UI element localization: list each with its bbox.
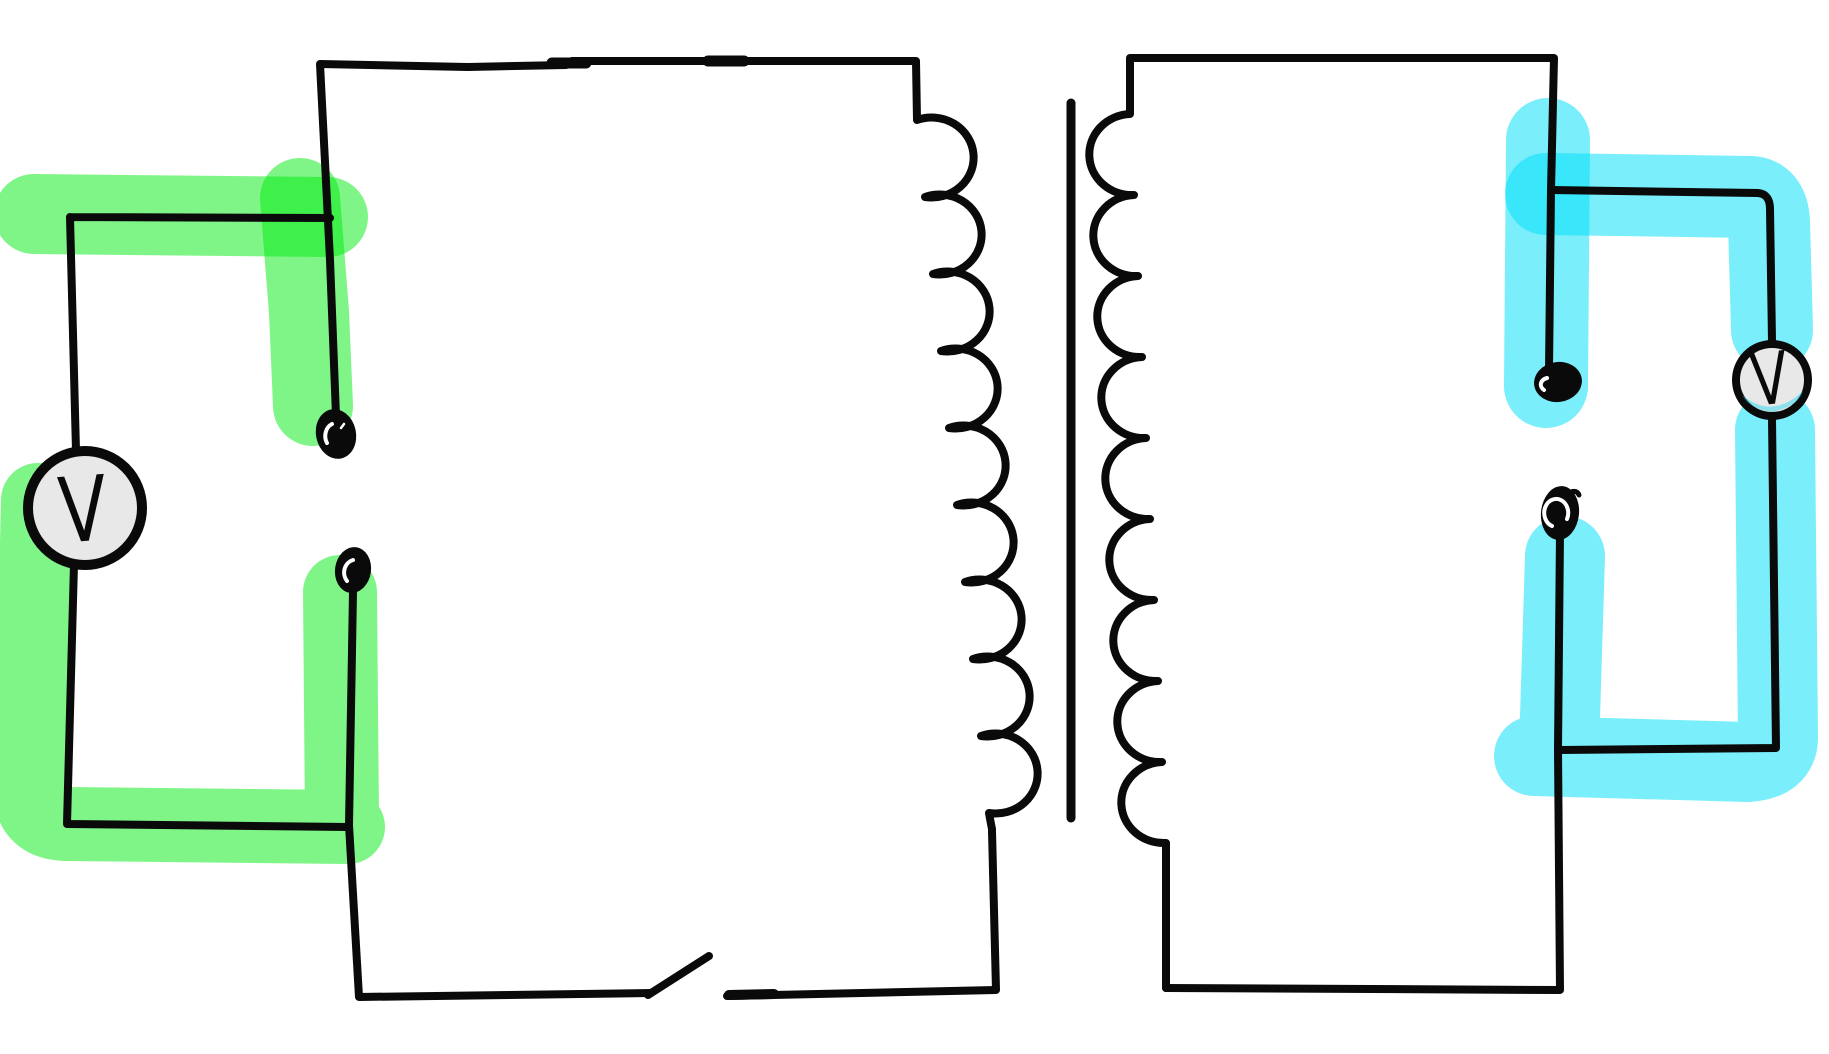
cyan-highlighter-right-loop — [1534, 140, 1778, 762]
voltmeter-right: V — [1736, 337, 1808, 424]
cyan-highlight-bottom-stroke — [1534, 430, 1778, 762]
switch-blade — [648, 956, 709, 995]
terminal-dots — [311, 359, 1584, 595]
hand-drawn-transformer-circuit-diagram: V V — [0, 0, 1829, 1054]
pen-overlap-mark-bottom — [729, 994, 774, 995]
green-highlight-probe-stroke — [300, 198, 313, 406]
voltmeter-left-label: V — [55, 457, 110, 565]
primary-circuit-outline — [320, 61, 1038, 829]
secondary-circuit-outline — [1089, 58, 1554, 988]
left-voltmeter-loop-wires — [67, 217, 996, 997]
voltmeter-left: V — [28, 451, 142, 565]
